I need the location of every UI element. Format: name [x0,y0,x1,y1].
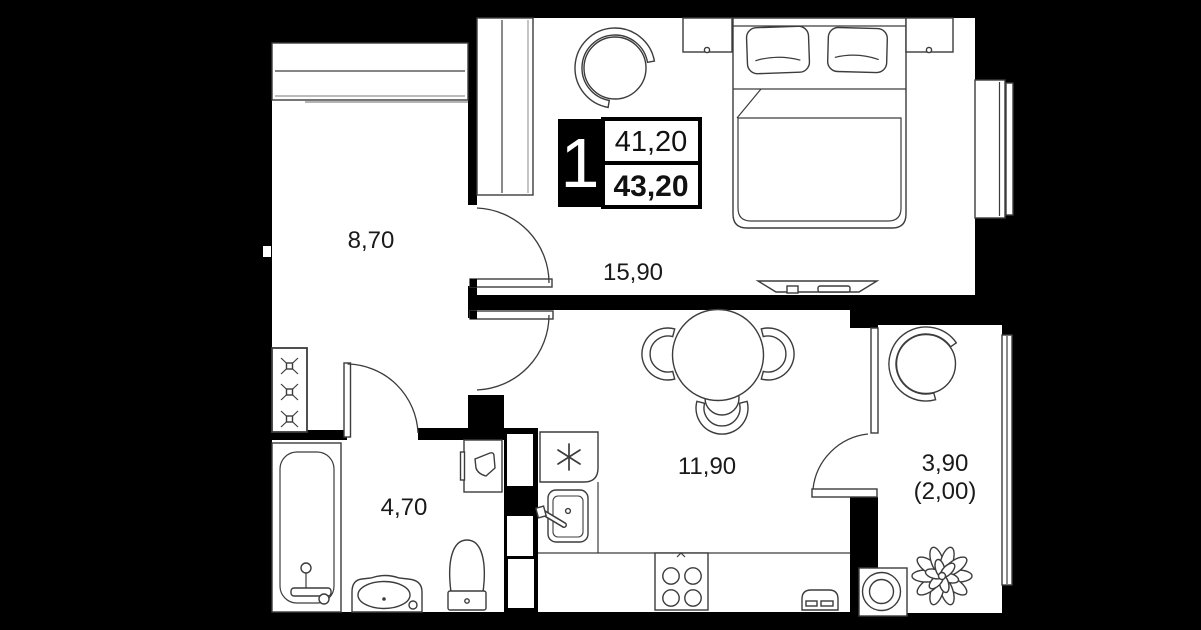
balcony-area-coefficient-label: (2,00) [914,478,977,505]
wardrobe-icon [272,43,468,102]
bedroom-window [975,80,1013,218]
bedroom-area-label: 15,90 [603,259,663,286]
total-area-value: 43,20 [613,170,688,203]
stove-icon [655,553,708,610]
wardrobe-icon [477,18,533,195]
bathroom-doorway-gap [347,430,418,440]
vanity-sink-icon [352,576,422,613]
kitchen-window [871,328,878,433]
fridge-icon [540,432,598,482]
hall-area-label: 8,70 [348,227,395,254]
washing-machine-icon [859,568,907,616]
balcony-glazing [1002,335,1012,585]
shaft-opening [507,516,533,556]
ventilation-shaft-icon [272,348,307,432]
living-area-value: 41,20 [615,126,688,158]
bathtub-icon [272,443,341,612]
nightstand-icon [906,18,953,53]
bed-icon [733,18,906,228]
shaft-opening [508,559,534,608]
radiator-icon [802,590,838,610]
tv-icon [758,281,877,293]
shaft-opening [507,434,533,486]
balcony-doorway-gap [850,433,878,497]
nightstand-icon [683,18,732,53]
dining-table-icon [673,310,764,401]
wall-bedroom-kitchen [468,295,850,308]
apartment-area-badge: 1 41,20 43,20 [558,119,700,207]
floor-plan-page: 8,70 [0,0,1201,630]
floor-plan-drawing: 8,70 [0,0,1201,630]
bathroom-area-label: 4,70 [381,494,428,521]
wall-joint-notch [263,246,271,257]
water-heater-icon [461,440,503,492]
rooms-count-value: 1 [561,124,600,202]
balcony-area-label: 3,90 [922,450,969,477]
toilet-icon [448,540,486,610]
kitchen-area-label: 11,90 [678,453,736,480]
